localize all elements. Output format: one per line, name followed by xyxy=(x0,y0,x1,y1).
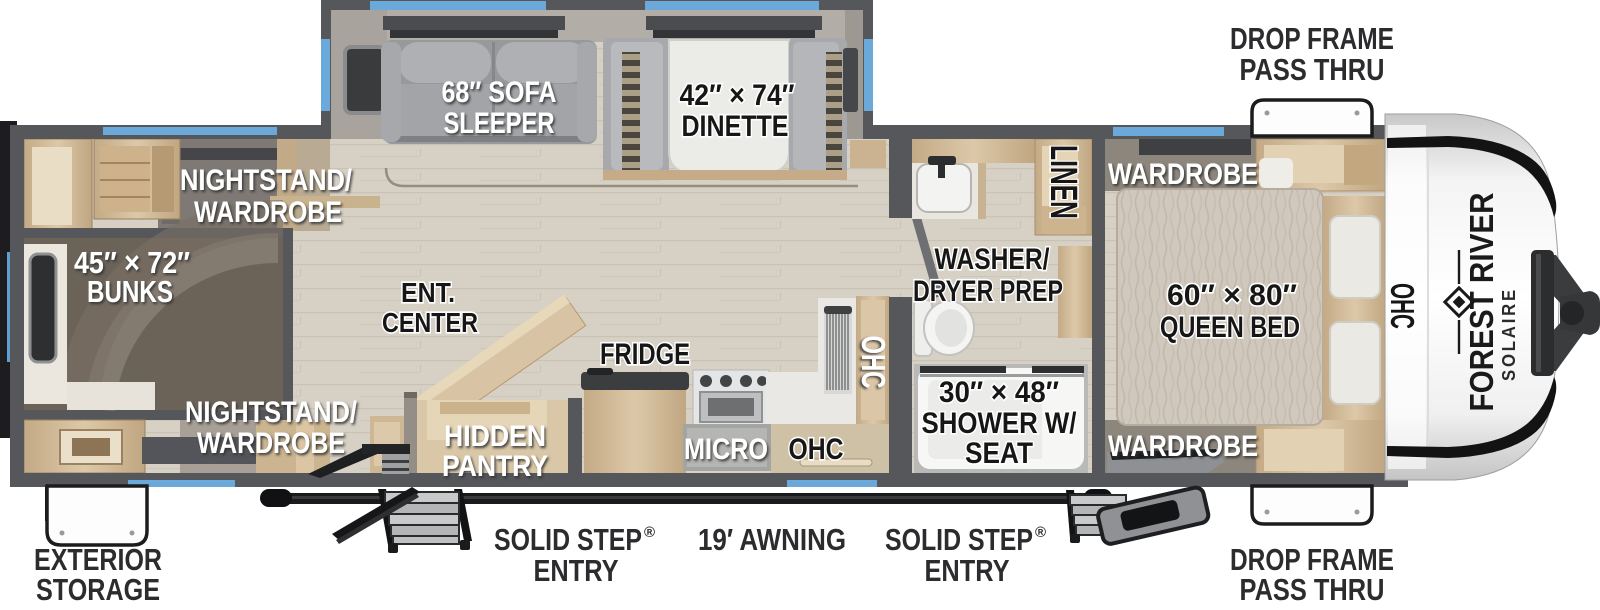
svg-text:FRIDGE: FRIDGE xyxy=(600,338,690,371)
svg-text:68″ SOFA: 68″ SOFA xyxy=(442,76,557,109)
svg-text:PASS THRU: PASS THRU xyxy=(1240,572,1385,607)
svg-text:DINETTE: DINETTE xyxy=(682,110,789,143)
svg-text:SHOWER W/: SHOWER W/ xyxy=(922,407,1078,440)
svg-text:WASHER/: WASHER/ xyxy=(935,243,1051,276)
svg-text:WARDROBE: WARDROBE xyxy=(194,196,342,229)
svg-text:SOLAIRE: SOLAIRE xyxy=(1499,287,1519,381)
svg-text:OHC: OHC xyxy=(789,433,844,466)
svg-text:PANTRY: PANTRY xyxy=(442,450,548,483)
svg-text:SOLID STEP: SOLID STEP xyxy=(494,522,642,557)
svg-text:FOREST RIVER: FOREST RIVER xyxy=(1463,192,1500,411)
svg-text:OHC: OHC xyxy=(855,336,892,389)
svg-text:SEAT: SEAT xyxy=(965,437,1033,470)
svg-text:BUNKS: BUNKS xyxy=(87,274,173,309)
svg-text:60″ × 80″: 60″ × 80″ xyxy=(1167,279,1297,312)
svg-text:19′ AWNING: 19′ AWNING xyxy=(698,522,846,557)
svg-text:DROP FRAME: DROP FRAME xyxy=(1230,21,1394,56)
svg-text:ENTRY: ENTRY xyxy=(925,553,1010,588)
svg-text:WARDROBE: WARDROBE xyxy=(1108,430,1258,463)
svg-text:WARDROBE: WARDROBE xyxy=(1108,158,1258,191)
svg-text:CENTER: CENTER xyxy=(382,307,478,338)
svg-text:LINEN: LINEN xyxy=(1042,145,1084,219)
svg-text:WARDROBE: WARDROBE xyxy=(197,427,345,460)
svg-text:®: ® xyxy=(644,524,655,541)
svg-text:OHC: OHC xyxy=(1384,283,1421,329)
svg-text:HIDDEN: HIDDEN xyxy=(444,420,546,453)
svg-text:NIGHTSTAND/: NIGHTSTAND/ xyxy=(185,396,358,429)
svg-text:SLEEPER: SLEEPER xyxy=(444,107,555,140)
svg-text:30″ × 48″: 30″ × 48″ xyxy=(939,376,1059,409)
svg-text:DRYER PREP: DRYER PREP xyxy=(913,275,1063,308)
svg-text:SOLID STEP: SOLID STEP xyxy=(885,522,1033,557)
svg-text:®: ® xyxy=(1035,524,1046,541)
svg-text:STORAGE: STORAGE xyxy=(36,572,160,607)
svg-text:NIGHTSTAND/: NIGHTSTAND/ xyxy=(180,164,353,197)
svg-text:ENTRY: ENTRY xyxy=(534,553,619,588)
svg-text:MICRO: MICRO xyxy=(684,433,768,466)
svg-text:PASS THRU: PASS THRU xyxy=(1240,52,1385,87)
svg-text:QUEEN BED: QUEEN BED xyxy=(1160,311,1300,344)
svg-text:ENT.: ENT. xyxy=(401,277,455,308)
svg-text:42″ × 74″: 42″ × 74″ xyxy=(680,79,795,112)
